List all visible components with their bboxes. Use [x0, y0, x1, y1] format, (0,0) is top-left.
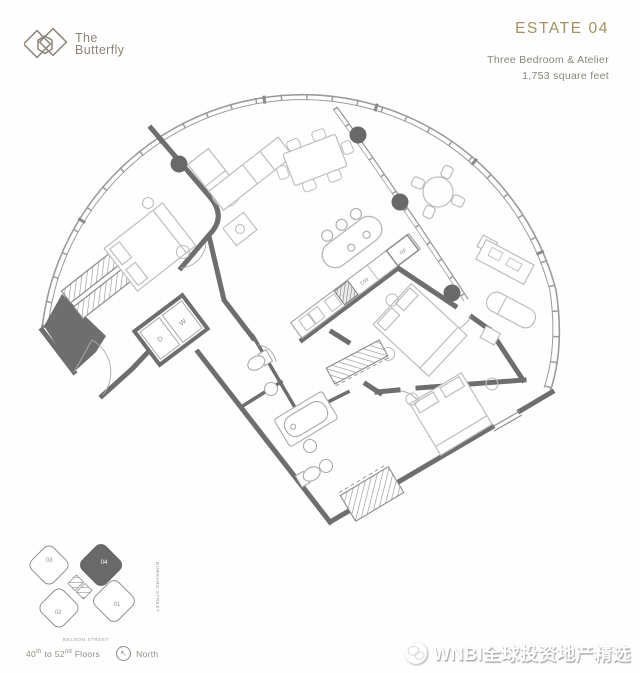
- master-closet: [326, 340, 388, 386]
- keyplan-core: [68, 575, 92, 599]
- unit-03-label: 03: [46, 558, 53, 564]
- coffee-table: [223, 212, 257, 245]
- sink: [304, 440, 317, 453]
- terrace-table: [410, 164, 465, 219]
- sofa: [188, 110, 293, 210]
- sink: [265, 383, 278, 396]
- unit-04-label: 04: [101, 560, 108, 566]
- watermark-text: WNBI全球投资地产精选: [433, 640, 631, 666]
- north-label: North: [136, 649, 158, 659]
- unit-01-label: 01: [114, 602, 121, 608]
- keyplan-unit-03: [27, 544, 71, 587]
- burrard-street-label: BURRARD STREET: [155, 562, 160, 613]
- wechat-icon: [403, 640, 429, 666]
- floor-plan-page: { "header": { "logo_line1": "The", "logo…: [0, 0, 640, 673]
- master-bath-fixtures: [274, 391, 338, 487]
- nelson-street-label: NELSON STREET: [63, 637, 109, 642]
- floors-compass-row: 40th to 52nd Floors ↖ North: [26, 646, 158, 661]
- bathtub: [274, 391, 338, 447]
- sink: [320, 460, 333, 473]
- keyplan-svg: 03 04 02 01 NELSON STREET BURRARD STREET: [20, 544, 165, 646]
- unit-02-label: 02: [55, 610, 62, 616]
- floors-label: 40th to 52nd Floors: [26, 649, 100, 659]
- nightstand: [143, 198, 154, 209]
- atelier-desk: [476, 235, 534, 284]
- terrace-door: [492, 411, 522, 431]
- north-compass-icon: ↖: [116, 646, 131, 661]
- watermark: WNBI全球投资地产精选: [403, 640, 631, 666]
- keyplan-unit-02: [37, 586, 81, 630]
- toilet: [245, 350, 272, 373]
- toilet: [295, 464, 322, 487]
- atelier-chaise: [480, 289, 539, 345]
